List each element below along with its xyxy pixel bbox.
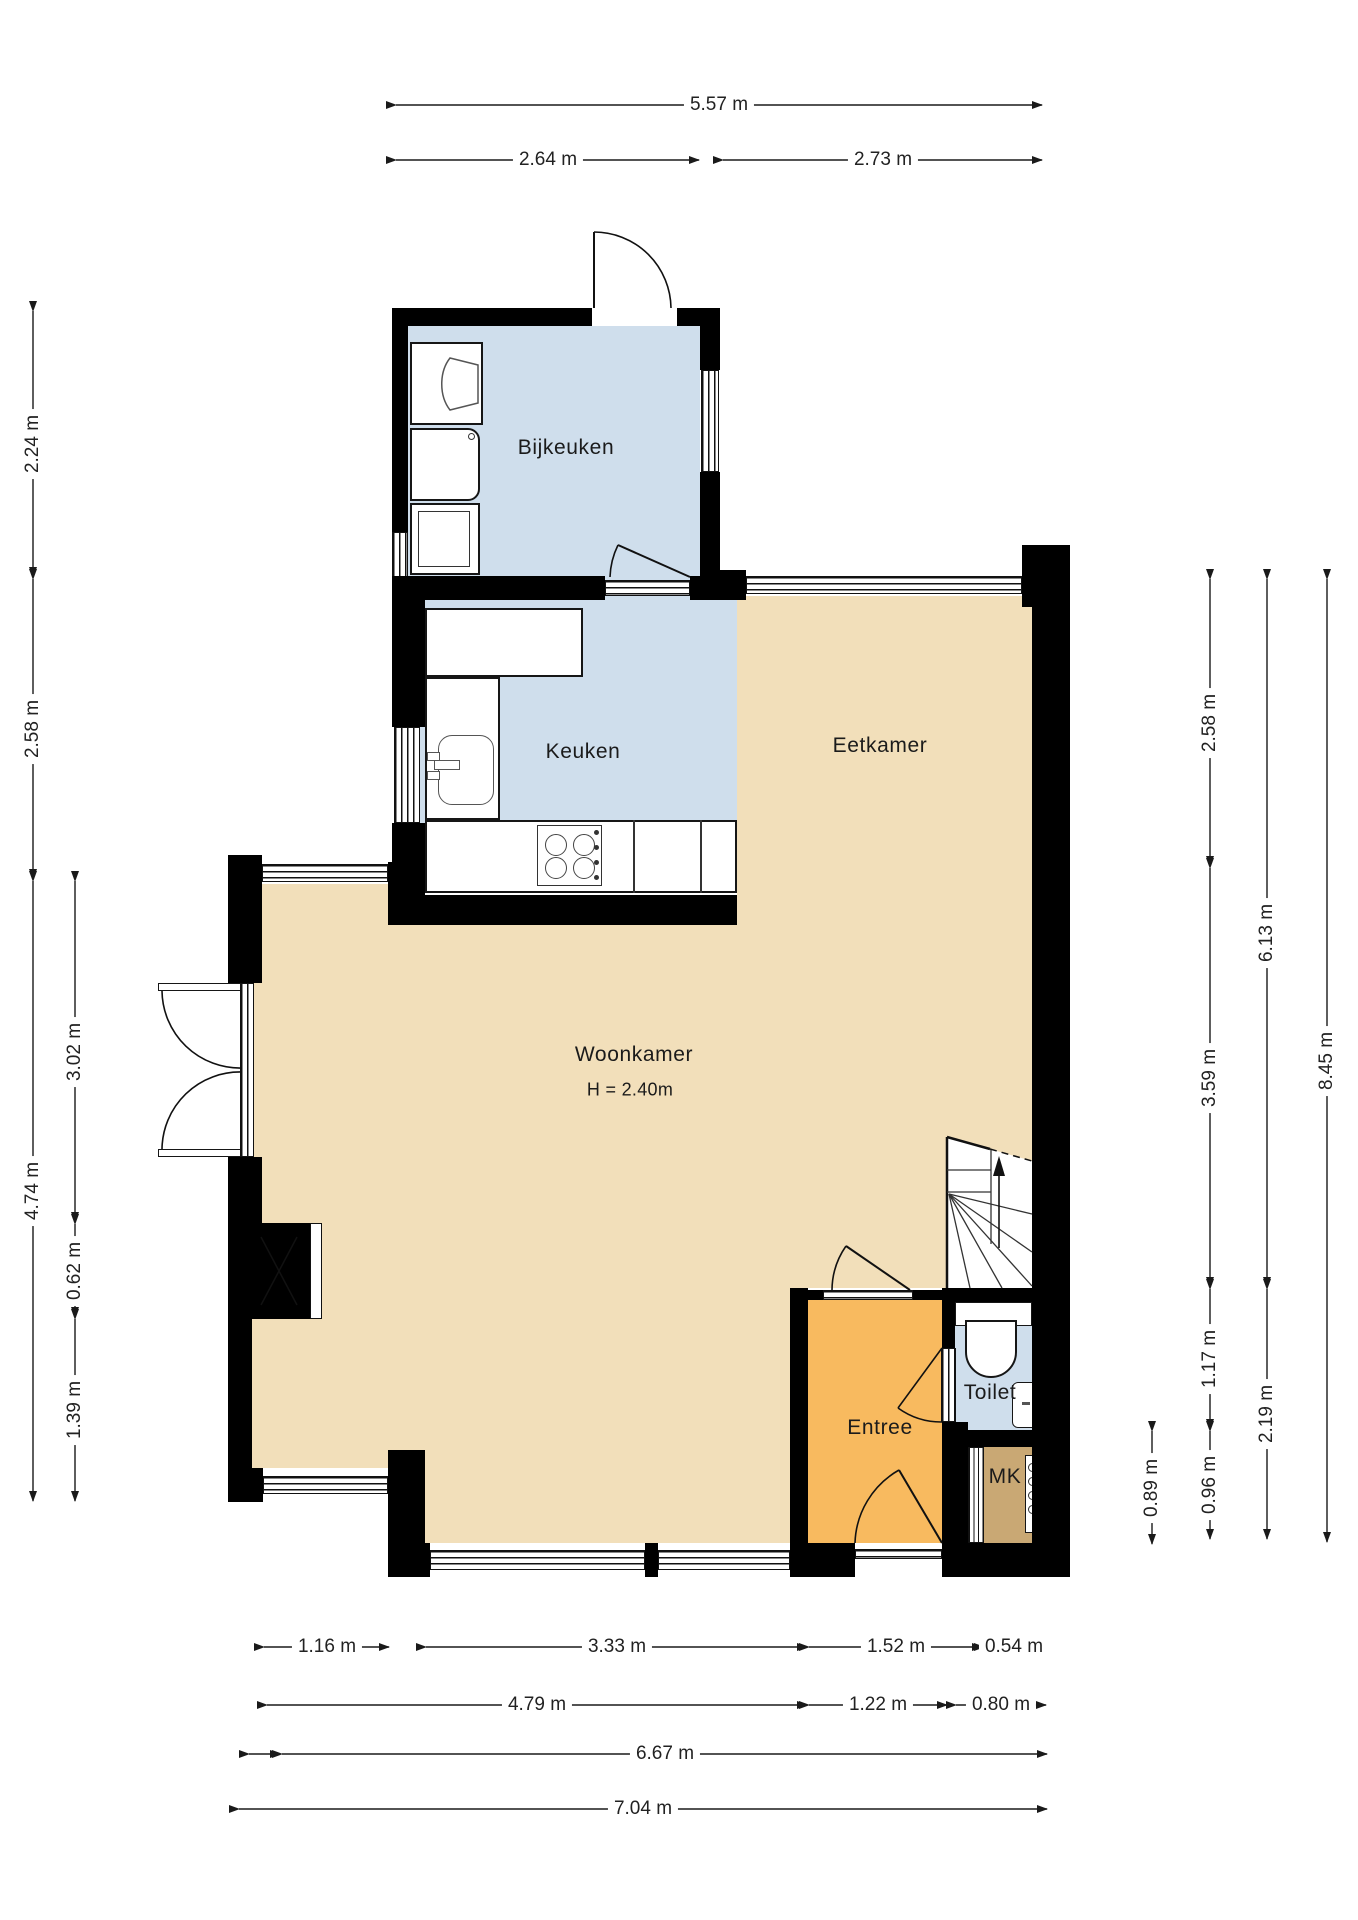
dim-bottom-r1-3: 1.52 m: [861, 1635, 931, 1659]
dim-bottom-r2-3: 0.80 m: [966, 1693, 1036, 1717]
dim-right-mk: 0.89 m: [1140, 1453, 1164, 1523]
dim-bottom-r1-1: 1.16 m: [292, 1635, 362, 1659]
woonkamer-label: Woonkamer: [575, 1043, 693, 1067]
dim-right-total: 8.45 m: [1315, 1026, 1339, 1096]
dim-right-c2-4: 0.96 m: [1198, 1450, 1222, 1520]
dim-bottom-r1-4: 0.54 m: [979, 1635, 1049, 1659]
keuken-label: Keuken: [546, 740, 621, 764]
dim-right-c3-1: 6.13 m: [1255, 898, 1279, 968]
dim-left-woonkamer: 4.74 m: [21, 1156, 45, 1226]
dim-bottom-r1-2: 3.33 m: [582, 1635, 652, 1659]
dim-left-inner-2: 0.62 m: [63, 1236, 87, 1306]
mk-label: MK: [989, 1465, 1022, 1489]
dim-left-keuken: 2.58 m: [21, 694, 45, 764]
bijkeuken-label: Bijkeuken: [518, 436, 614, 460]
plan-linework: [0, 0, 1358, 1920]
entree-label: Entree: [847, 1416, 912, 1440]
dim-right-c2-1: 2.58 m: [1198, 688, 1222, 758]
dim-left-bijkeuken: 2.24 m: [21, 409, 45, 479]
woonkamer-height-note: H = 2.40m: [587, 1080, 673, 1101]
floorplan-canvas: Bijkeuken Keuken Eetkamer Woonkamer H = …: [0, 0, 1358, 1920]
eetkamer-label: Eetkamer: [833, 734, 928, 758]
dim-bottom-r2-1: 4.79 m: [502, 1693, 572, 1717]
dim-top-total: 5.57 m: [684, 93, 754, 117]
toilet-label: Toilet: [964, 1381, 1017, 1405]
dim-left-inner-1: 3.02 m: [63, 1017, 87, 1087]
dim-top-right: 2.73 m: [848, 148, 918, 172]
dim-bottom-r2-2: 1.22 m: [843, 1693, 913, 1717]
dim-right-c2-2: 3.59 m: [1198, 1043, 1222, 1113]
dim-top-left: 2.64 m: [513, 148, 583, 172]
dim-left-inner-3: 1.39 m: [63, 1375, 87, 1445]
dim-right-c3-2: 2.19 m: [1255, 1379, 1279, 1449]
dim-bottom-r4-1: 7.04 m: [608, 1797, 678, 1821]
stairs: [947, 1137, 1032, 1288]
dim-right-c2-3: 1.17 m: [1198, 1324, 1222, 1394]
dim-bottom-r3-1: 6.67 m: [630, 1742, 700, 1766]
